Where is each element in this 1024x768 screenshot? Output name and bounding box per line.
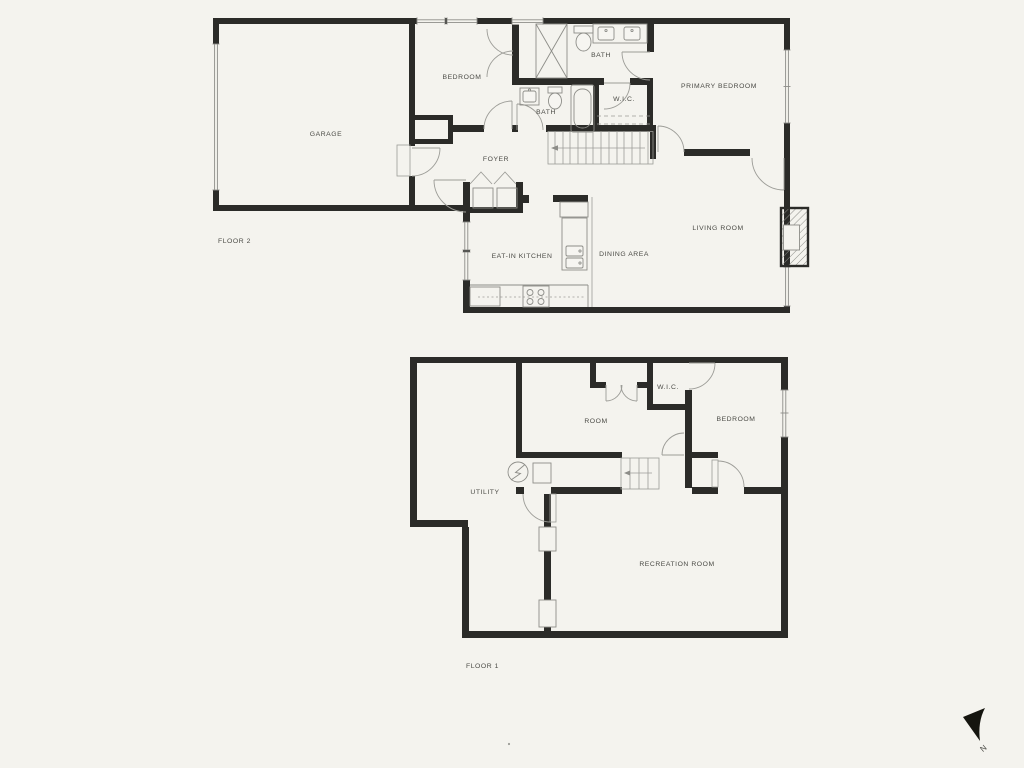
toilet	[574, 26, 593, 51]
floor2-plan: GARAGE BEDROOM BATH BATH W.I.C. PRIMARY …	[213, 17, 809, 313]
page-mark-dot	[508, 743, 510, 745]
stove	[523, 286, 549, 307]
room-label-recreation: RECREATION ROOM	[639, 561, 714, 568]
room-label-bath-top: BATH	[591, 52, 611, 59]
window	[463, 222, 471, 250]
pantry-shelves	[470, 172, 517, 208]
floor1-plan: ROOM W.I.C. BEDROOM UTILITY RECREATION R…	[410, 357, 789, 670]
double-vanity	[593, 24, 647, 43]
north-arrow: N	[963, 708, 989, 754]
room-label-bedroom: BEDROOM	[443, 74, 482, 81]
window	[781, 390, 789, 437]
window	[417, 17, 445, 24]
fireplace	[781, 208, 808, 266]
room-label-wic2: W.I.C.	[613, 96, 635, 103]
floor1-label: FLOOR 1	[466, 663, 499, 670]
north-arrow-label: N	[978, 743, 989, 754]
entry-landing	[397, 145, 410, 176]
room-label-bath-mid: BATH	[536, 109, 556, 116]
room-label-living: LIVING ROOM	[692, 225, 743, 232]
floor2-label: FLOOR 2	[218, 238, 251, 245]
floor-plan-page: GARAGE BEDROOM BATH BATH W.I.C. PRIMARY …	[0, 0, 1024, 768]
bath2-sink	[520, 88, 539, 105]
floor1-fixtures	[508, 462, 551, 483]
water-heater	[533, 463, 551, 483]
room-label-foyer: FOYER	[483, 156, 509, 163]
floor1-doors	[523, 363, 744, 522]
window	[447, 17, 477, 24]
floor2-labels: GARAGE BEDROOM BATH BATH W.I.C. PRIMARY …	[218, 52, 757, 260]
bathtub	[571, 85, 594, 132]
room-label-primary-bedroom: PRIMARY BEDROOM	[681, 83, 757, 90]
wall-niche	[539, 527, 556, 551]
stairs-floor1	[621, 458, 659, 489]
room-label-room: ROOM	[584, 418, 607, 425]
stairs-direction-arrow	[551, 145, 558, 151]
window	[463, 252, 471, 280]
sink-basin	[566, 246, 583, 256]
room-label-dining: DINING AREA	[599, 251, 649, 258]
garage-door	[213, 44, 220, 190]
floor2-fixtures	[470, 24, 652, 307]
kitchen-counters	[470, 197, 592, 307]
room-label-bedroom1: BEDROOM	[717, 416, 756, 423]
shower	[536, 24, 567, 78]
room-label-kitchen: EAT-IN KITCHEN	[492, 253, 553, 260]
floor1-labels: ROOM W.I.C. BEDROOM UTILITY RECREATION R…	[466, 384, 755, 670]
floor-plan-svg: GARAGE BEDROOM BATH BATH W.I.C. PRIMARY …	[0, 0, 1024, 768]
toilet	[548, 87, 562, 109]
wall-niche	[539, 600, 556, 627]
window	[512, 17, 543, 24]
north-arrow-dart	[963, 708, 985, 741]
room-label-wic1: W.I.C.	[657, 384, 679, 391]
refrigerator	[560, 202, 588, 217]
floor1-walls	[410, 357, 788, 638]
stairs-direction-arrow	[624, 471, 630, 476]
stairs-floor2	[548, 132, 653, 165]
sink-basin	[566, 258, 583, 268]
breaker-panel-icon	[508, 462, 528, 482]
window	[784, 267, 791, 306]
wic-shelving	[597, 116, 652, 124]
room-label-utility: UTILITY	[470, 489, 499, 496]
dishwasher	[470, 287, 500, 306]
floor1-windows	[781, 390, 789, 437]
room-label-garage: GARAGE	[310, 131, 342, 138]
floor2-walls	[213, 18, 790, 313]
window	[784, 50, 791, 123]
